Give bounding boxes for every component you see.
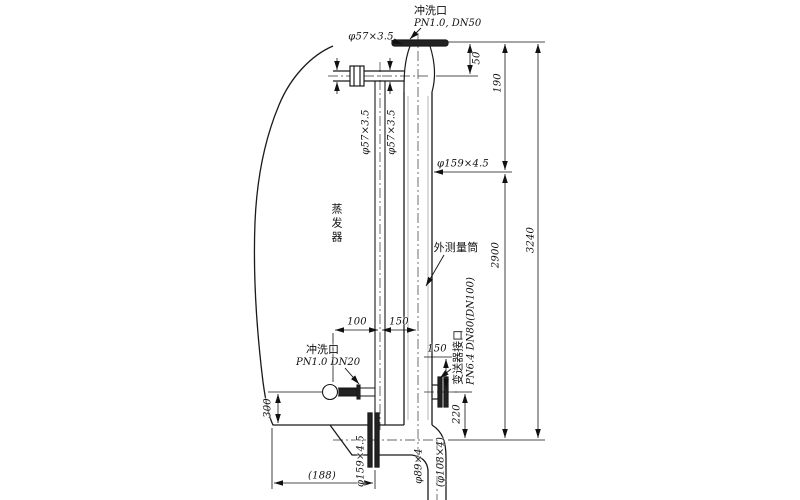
top-pipe-spec-label: φ57×3.5	[348, 32, 393, 43]
technical-drawing: 冲洗口 PN1.0, DN50 φ57×3.5 φ57×3.5 φ57×3.5 …	[0, 0, 800, 500]
dim-2900: 2900	[491, 242, 502, 268]
bottom-flush-port-spec: PN1.0 DN20	[296, 357, 360, 368]
top-flush-port-spec: PN1.0, DN50	[414, 18, 481, 29]
transmitter-port-label: 变送器接口 PN6.4 DN80(DN100)	[450, 277, 477, 385]
bottom-flange-plate	[368, 413, 372, 467]
valve-body	[323, 385, 338, 400]
bottom-pipe-spec-label: φ159×4.5	[356, 435, 367, 487]
dim-150-mid: 150	[389, 317, 409, 328]
bottom-flush-port-name: 冲洗口	[296, 341, 360, 357]
transmitter-port-name: 变送器接口	[450, 277, 466, 385]
drain-pipe-spec-label: φ89×4	[414, 448, 425, 483]
downcomer-spec-label: φ57×3.5	[387, 109, 398, 154]
transmitter-port-spec: PN6.4 DN80(DN100)	[466, 277, 477, 385]
dim-50: 50	[472, 51, 483, 64]
top-flush-port-label: 冲洗口 PN1.0, DN50	[414, 2, 481, 29]
valve-actuator	[339, 389, 358, 396]
port-flange-plate	[438, 377, 442, 407]
horiz-pipe-spec-label: φ57×3.5	[361, 109, 372, 154]
drawing-linework	[0, 0, 800, 500]
bottom-flush-port-label: 冲洗口 PN1.0 DN20	[296, 341, 360, 368]
top-flange-assembly	[392, 40, 448, 92]
bottom-flange-plate	[375, 413, 379, 467]
dim-3240: 3240	[526, 227, 537, 253]
cylinder-spec-label: φ159×4.5	[437, 159, 489, 170]
bottom-flush-valve	[323, 385, 376, 400]
dim-188: (188)	[308, 471, 336, 482]
dim-100: 100	[347, 317, 367, 328]
top-flush-port-name: 冲洗口	[414, 2, 481, 18]
evaporator-label: 蒸发器	[328, 203, 344, 245]
dim-300: 300	[263, 398, 274, 418]
dim-220: 220	[452, 404, 463, 424]
pipe-fitting	[350, 66, 364, 86]
measuring-cylinder-label: 外测量筒	[434, 239, 479, 255]
dim-150-right: 150	[427, 344, 447, 355]
dim-190: 190	[493, 73, 504, 93]
extension-lines	[268, 42, 545, 489]
drain-pipe-alt-spec-label: (φ108×4)	[436, 437, 447, 487]
